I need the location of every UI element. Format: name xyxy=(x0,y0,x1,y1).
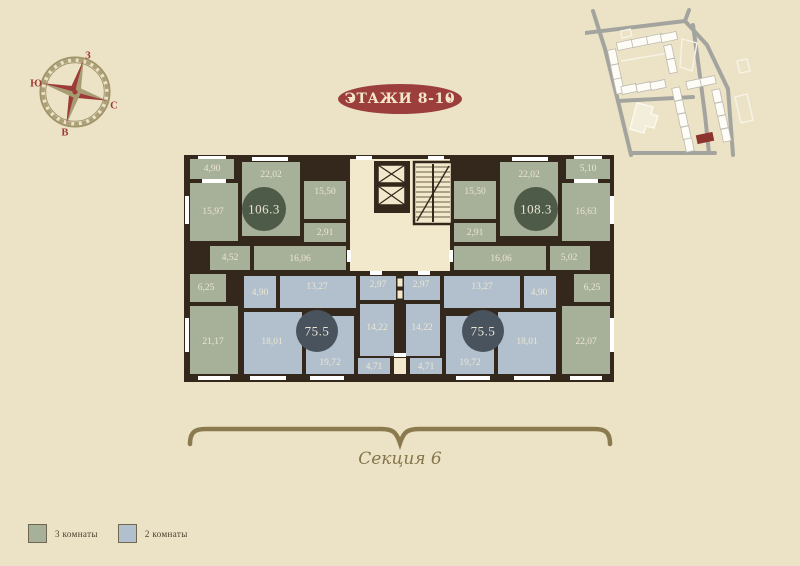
apartment-total-area: 106.3 xyxy=(248,202,280,217)
room-area-label: 2,91 xyxy=(317,228,334,238)
floor-plan: 4,9015,9722,0215,502,914,5216,066,2521,1… xyxy=(182,146,618,390)
room-area-label: 22,02 xyxy=(518,170,540,180)
window xyxy=(610,318,614,352)
minimap-current-building xyxy=(696,132,714,144)
window xyxy=(185,318,189,352)
badge-dot-right xyxy=(446,97,451,102)
room-area-label: 14,22 xyxy=(366,323,388,333)
room-area-label: 16,06 xyxy=(289,254,311,264)
apartment-total-area: 75.5 xyxy=(305,324,330,339)
window xyxy=(610,196,614,224)
badge-dot-left xyxy=(349,97,354,102)
compass-letter-north: С xyxy=(110,100,118,111)
door-opening xyxy=(370,271,382,275)
door-opening xyxy=(394,353,406,357)
window xyxy=(310,376,344,380)
room-area-label: 4,71 xyxy=(418,362,435,372)
compass-letter-west: З xyxy=(85,50,91,61)
window xyxy=(252,157,288,161)
window xyxy=(202,179,226,183)
room-area-label: 16,63 xyxy=(575,207,597,217)
window xyxy=(250,376,286,380)
room-area-label: 15,50 xyxy=(314,187,336,197)
window xyxy=(356,156,372,160)
window xyxy=(514,376,550,380)
window xyxy=(185,196,189,224)
room-area-label: 13,27 xyxy=(471,282,493,292)
minimap-building-outline xyxy=(630,103,658,133)
room-area-label: 19,72 xyxy=(459,358,481,368)
room-area-label: 18,01 xyxy=(261,337,283,347)
room-area-label: 2,97 xyxy=(413,280,430,290)
legend-item-3k: 3 комнаты xyxy=(28,524,98,543)
room-area-label: 5,10 xyxy=(580,164,597,174)
vent-shaft xyxy=(397,278,403,287)
site-plan-minimap xyxy=(585,5,790,160)
floors-badge-label: ЭТАЖИ 8-10 xyxy=(345,91,455,107)
room-area-label: 4,90 xyxy=(252,288,269,298)
legend-label-2-rooms: 2 комнаты xyxy=(145,529,188,539)
legend-swatch-2-rooms xyxy=(118,524,137,543)
window xyxy=(574,156,602,159)
window xyxy=(570,376,602,380)
window xyxy=(456,376,490,380)
window xyxy=(198,376,230,380)
room-area-label: 4,90 xyxy=(204,164,221,174)
room-area-label: 21,17 xyxy=(202,337,224,347)
door-opening xyxy=(418,271,430,275)
room-area-label: 13,27 xyxy=(306,282,328,292)
room-area-label: 4,52 xyxy=(222,253,239,263)
legend: 3 комнаты 2 комнаты xyxy=(28,524,188,543)
room-area-label: 16,06 xyxy=(490,254,512,264)
room-area-label: 4,71 xyxy=(366,362,383,372)
apartment-total-area: 75.5 xyxy=(471,324,496,339)
room-area-label: 19,72 xyxy=(319,358,341,368)
floors-badge: ЭТАЖИ 8-10 xyxy=(338,84,462,114)
door-opening xyxy=(449,250,453,262)
window xyxy=(574,179,598,183)
room-area-label: 6,25 xyxy=(584,283,601,293)
compass-letter-east: В xyxy=(61,128,68,139)
room-area-label: 2,91 xyxy=(467,228,484,238)
legend-item-2k: 2 комнаты xyxy=(118,524,188,543)
section-label: Секция 6 xyxy=(300,449,500,469)
compass-letter-south: Ю xyxy=(30,78,42,89)
room-area-label: 5,02 xyxy=(561,253,578,263)
vent-shaft xyxy=(397,290,403,299)
room-area-label: 15,50 xyxy=(464,187,486,197)
room-area-label: 4,90 xyxy=(531,288,548,298)
legend-swatch-3-rooms xyxy=(28,524,47,543)
room-area-label: 22,07 xyxy=(575,337,597,347)
room-area-label: 14,22 xyxy=(411,323,433,333)
room-area-label: 18,01 xyxy=(516,337,538,347)
window xyxy=(428,156,444,160)
window xyxy=(198,156,226,159)
room-area-label: 15,97 xyxy=(202,207,224,217)
window xyxy=(512,157,548,161)
legend-label-3-rooms: 3 комнаты xyxy=(55,529,98,539)
room-area-label: 2,97 xyxy=(370,280,387,290)
page: З Ю С В ЭТАЖИ 8-10 xyxy=(0,0,800,566)
corridor-lower xyxy=(394,358,406,374)
room-area-label: 22,02 xyxy=(260,170,282,180)
apartment-total-area: 108.3 xyxy=(520,202,552,217)
compass-rose: З Ю С В xyxy=(27,44,123,140)
door-opening xyxy=(347,250,351,262)
room-area-label: 6,25 xyxy=(198,283,215,293)
